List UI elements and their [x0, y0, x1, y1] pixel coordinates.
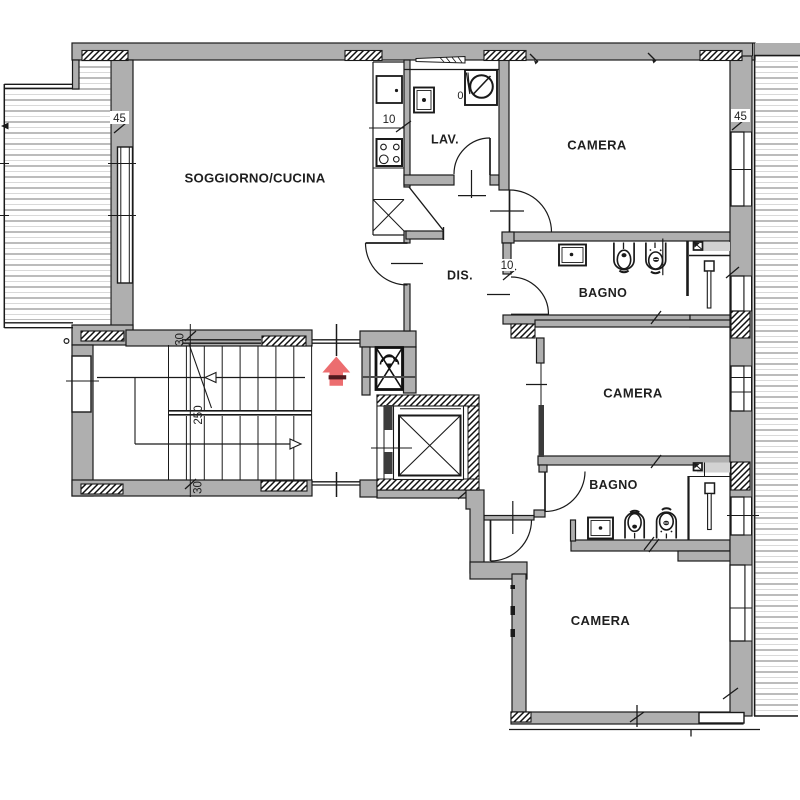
svg-text:30: 30 [175, 333, 187, 346]
svg-text:45: 45 [734, 111, 747, 123]
svg-text:CAMERA: CAMERA [571, 613, 631, 628]
svg-text:10: 10 [383, 114, 396, 126]
svg-text:CAMERA: CAMERA [567, 138, 627, 153]
svg-text:BAGNO: BAGNO [589, 478, 638, 492]
svg-text:DIS.: DIS. [447, 269, 473, 283]
svg-text:CAMERA: CAMERA [603, 386, 663, 401]
svg-text:250: 250 [193, 405, 205, 424]
svg-text:10: 10 [501, 260, 514, 272]
svg-text:30: 30 [193, 481, 205, 494]
svg-text:LAV.: LAV. [431, 133, 459, 147]
svg-text:45: 45 [113, 113, 126, 125]
svg-text:BAGNO: BAGNO [579, 286, 628, 300]
svg-text:SOGGIORNO/CUCINA: SOGGIORNO/CUCINA [185, 171, 326, 186]
svg-text:0.: 0. [457, 90, 466, 102]
